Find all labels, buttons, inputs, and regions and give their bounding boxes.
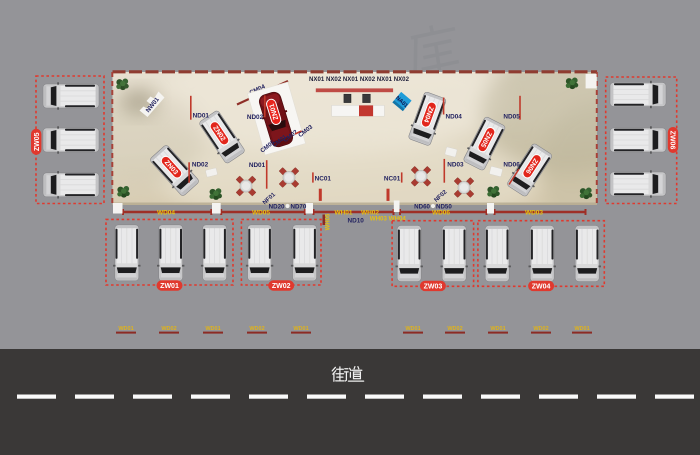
svg-text:ND01: ND01: [193, 113, 210, 120]
svg-text:NC01: NC01: [384, 176, 401, 183]
svg-text:ZW04: ZW04: [532, 284, 551, 291]
svg-text:NC01: NC01: [315, 176, 332, 183]
svg-text:NX01 NX02 NX01 NX02 NX01: NX01 NX02 NX01 NX02 NX01 NX02: [309, 76, 410, 83]
svg-text:ND02: ND02: [247, 114, 264, 121]
svg-text:WD01: WD01: [118, 326, 133, 332]
svg-text:WD01: WD01: [490, 326, 505, 332]
svg-text:WD01: WD01: [574, 326, 589, 332]
svg-text:ZW06: ZW06: [668, 131, 675, 150]
svg-text:ND01: ND01: [249, 162, 266, 169]
svg-text:WD02: WD02: [447, 326, 462, 332]
svg-text:ND20: ND20: [269, 203, 285, 210]
svg-text:WD02: WD02: [249, 326, 264, 332]
svg-text:ND06: ND06: [503, 162, 520, 169]
svg-text:WD03: WD03: [525, 210, 543, 217]
svg-text:WD01: WD01: [293, 326, 308, 332]
svg-text:WH03 WH04: WH03 WH04: [370, 216, 407, 223]
svg-text:WD02: WD02: [533, 326, 548, 332]
svg-text:ND70: ND70: [291, 203, 307, 210]
svg-text:ND03: ND03: [447, 162, 464, 169]
svg-text:ZW03: ZW03: [424, 284, 443, 291]
svg-text:ZW05: ZW05: [34, 132, 41, 151]
svg-text:WH01: WH01: [334, 210, 352, 217]
svg-text:ND10: ND10: [348, 218, 365, 225]
svg-text:ND50: ND50: [436, 203, 452, 210]
svg-text:ZW02: ZW02: [272, 283, 291, 290]
svg-text:WH05: WH05: [326, 213, 332, 230]
svg-text:WD04: WD04: [157, 210, 175, 217]
svg-text:ND02: ND02: [192, 162, 209, 169]
svg-text:WD01: WD01: [205, 326, 220, 332]
svg-text:ND04: ND04: [446, 114, 463, 121]
svg-text:ZW01: ZW01: [160, 283, 179, 290]
svg-text:WD06: WD06: [432, 210, 450, 217]
svg-text:WD02: WD02: [161, 326, 176, 332]
svg-text:WD01: WD01: [405, 326, 420, 332]
svg-text:WD05: WD05: [252, 210, 270, 217]
svg-text:ND60: ND60: [414, 203, 430, 210]
svg-text:ND05: ND05: [503, 114, 520, 121]
